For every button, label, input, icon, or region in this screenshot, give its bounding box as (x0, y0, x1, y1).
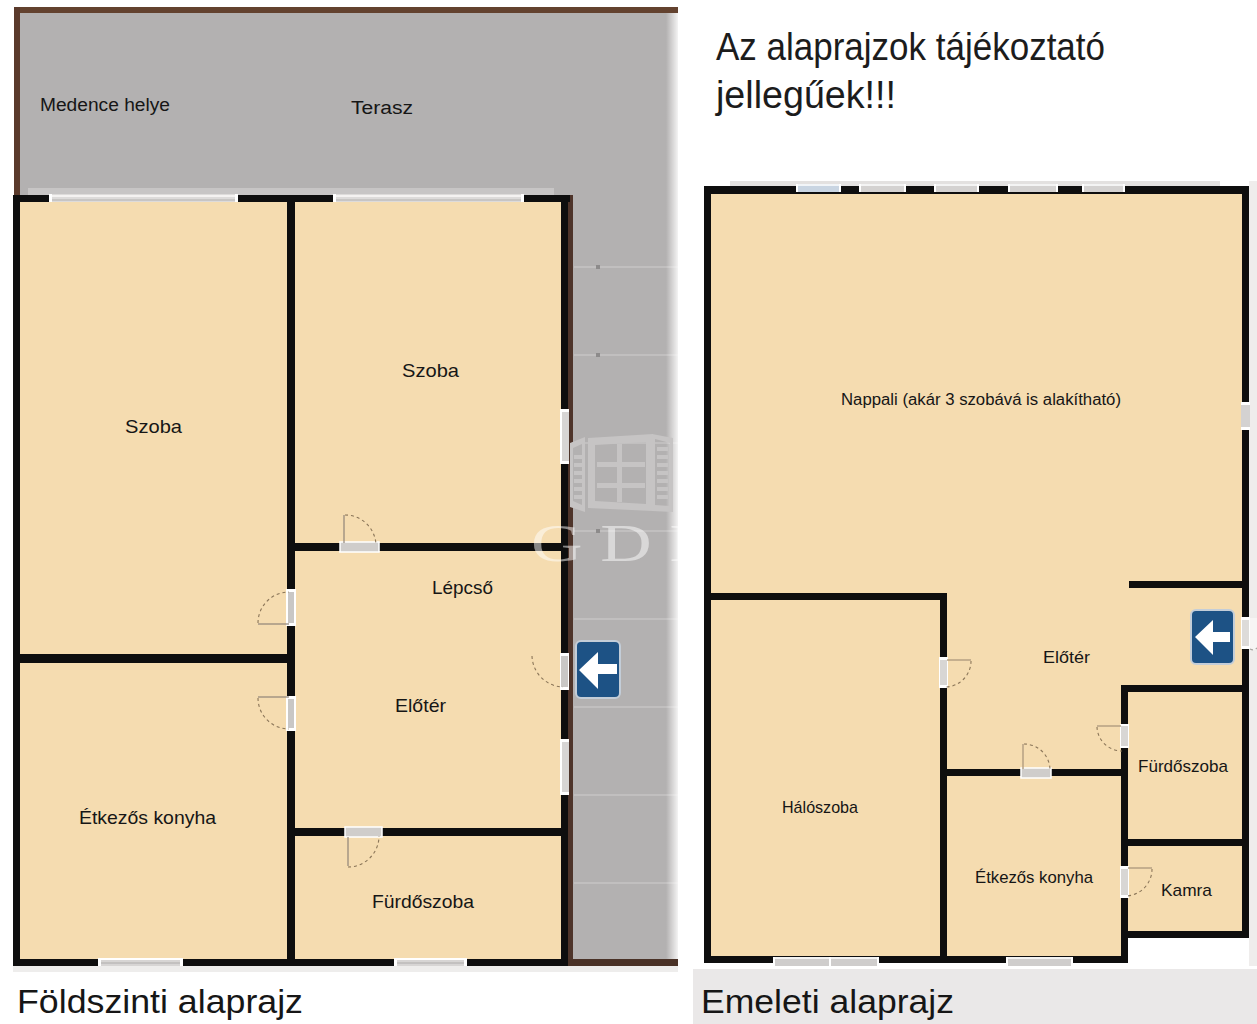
svg-text:Hálószoba: Hálószoba (782, 798, 859, 817)
svg-text:Szoba: Szoba (125, 416, 182, 437)
svg-text:Szoba: Szoba (402, 360, 459, 381)
svg-text:Terasz: Terasz (351, 98, 413, 118)
svg-text:Nappali (akár 3 szobává is ala: Nappali (akár 3 szobává is alakítható) (841, 391, 1121, 408)
svg-text:Kamra: Kamra (1161, 881, 1213, 900)
svg-text:Étkezős konyha: Étkezős konyha (79, 807, 216, 828)
svg-text:Előtér: Előtér (395, 695, 447, 716)
svg-text:Előtér: Előtér (1043, 648, 1090, 667)
svg-text:Az alaprajzok tájékoztató: Az alaprajzok tájékoztató (716, 26, 1105, 68)
svg-text:Fürdőszoba: Fürdőszoba (1138, 757, 1229, 776)
svg-text:Lépcső: Lépcső (432, 577, 493, 598)
svg-text:G D N: G D N (531, 514, 721, 572)
svg-text:Étkezős konyha: Étkezős konyha (975, 868, 1094, 887)
svg-text:Medence helye: Medence helye (40, 95, 170, 115)
svg-text:Földszinti alaprajz: Földszinti alaprajz (17, 982, 303, 1020)
svg-text:Fürdőszoba: Fürdőszoba (372, 891, 474, 912)
svg-text:Emeleti alaprajz: Emeleti alaprajz (701, 982, 954, 1020)
svg-text:jellegűek!!!: jellegűek!!! (715, 74, 896, 116)
